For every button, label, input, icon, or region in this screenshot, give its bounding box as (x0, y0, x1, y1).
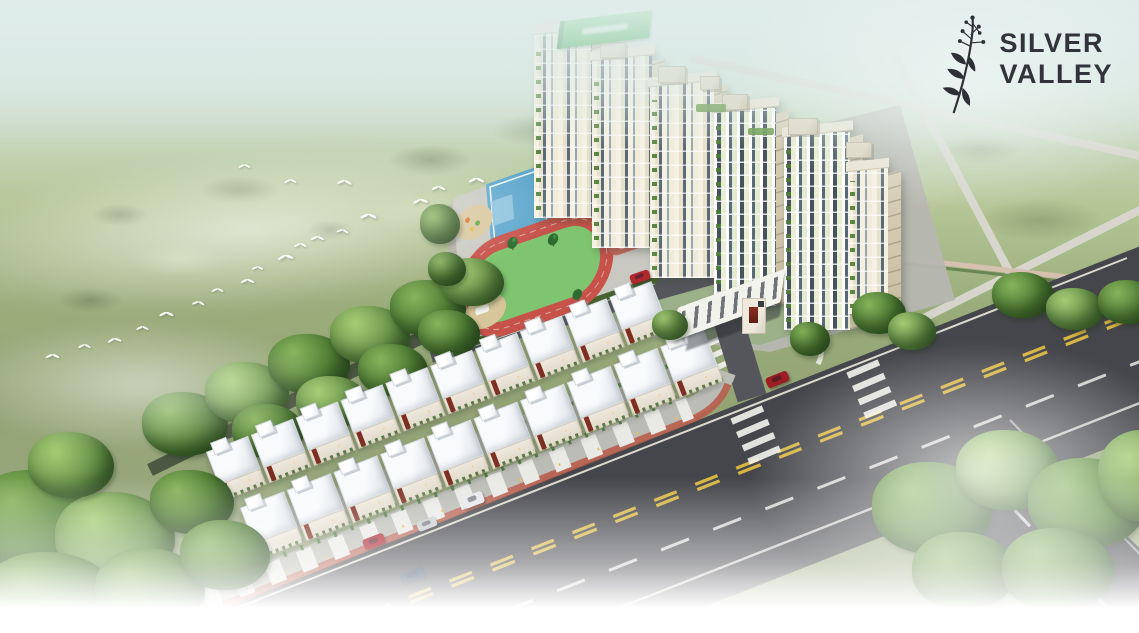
tree (180, 520, 270, 590)
brand-name: SILVER VALLEY (999, 28, 1113, 90)
apartment-tower (592, 56, 652, 248)
tree (1046, 288, 1104, 330)
rooftop-garden (748, 128, 774, 135)
tree (420, 204, 460, 244)
tree (790, 322, 830, 356)
egret-bird (252, 264, 264, 271)
brand-logo: SILVER VALLEY (941, 8, 1113, 120)
tower-front-face (534, 30, 592, 218)
egret-bird (107, 335, 122, 345)
tree (1002, 528, 1114, 612)
tree (652, 310, 688, 340)
egret-bird (294, 241, 307, 249)
egret-bird (360, 211, 377, 221)
rooftop-box (788, 118, 818, 135)
tree (428, 252, 466, 286)
egret-bird (159, 309, 174, 318)
tree (28, 432, 114, 498)
egret-bird (431, 184, 445, 193)
rooftop-box (700, 76, 720, 90)
egret-bird (277, 251, 294, 262)
apartment-tower (534, 30, 592, 218)
egret-bird (136, 324, 149, 332)
egret-bird (45, 352, 59, 361)
egret-bird (412, 196, 428, 207)
rooftop-garden (696, 104, 726, 112)
egret-bird (192, 298, 206, 307)
egret-bird (211, 286, 223, 294)
tree (888, 312, 936, 350)
gate-house (742, 298, 766, 334)
tree (912, 532, 1016, 610)
rooftop-box (600, 42, 626, 58)
tree (992, 272, 1054, 318)
botanical-branch-icon (941, 8, 995, 120)
egret-bird (336, 227, 349, 236)
brand-name-line2: VALLEY (999, 59, 1113, 90)
egret-bird (311, 234, 325, 242)
egret-bird (284, 177, 297, 185)
egret-bird (240, 277, 254, 286)
tower-front-face (784, 132, 850, 330)
rooftop-box (846, 142, 872, 158)
egret-bird (337, 177, 353, 187)
brand-name-line1: SILVER (999, 28, 1113, 59)
egret-bird (468, 175, 484, 185)
tower-front-face (592, 56, 652, 248)
rooftop-box (658, 66, 686, 83)
aerial-render-scene: SILVER VALLEY (0, 0, 1139, 633)
egret-bird (78, 342, 91, 350)
egret-bird (238, 162, 250, 170)
apartment-tower (784, 132, 850, 330)
